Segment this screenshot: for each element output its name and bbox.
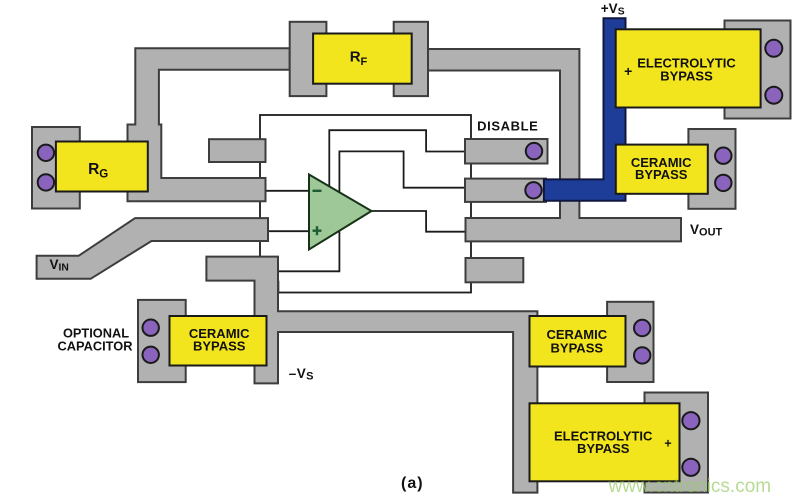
- svg-text:BYPASS: BYPASS: [660, 69, 713, 84]
- svg-text:+: +: [664, 436, 671, 450]
- svg-text:BYPASS: BYPASS: [577, 441, 630, 456]
- svg-text:DISABLE: DISABLE: [477, 118, 538, 133]
- svg-text:BYPASS: BYPASS: [193, 338, 246, 353]
- svg-text:+: +: [624, 63, 632, 79]
- svg-text:CAPACITOR: CAPACITOR: [58, 338, 133, 353]
- svg-text:BYPASS: BYPASS: [551, 340, 604, 355]
- svg-text:www.cntronics.com: www.cntronics.com: [608, 476, 772, 497]
- svg-text:(a): (a): [401, 475, 424, 492]
- svg-text:BYPASS: BYPASS: [635, 167, 688, 182]
